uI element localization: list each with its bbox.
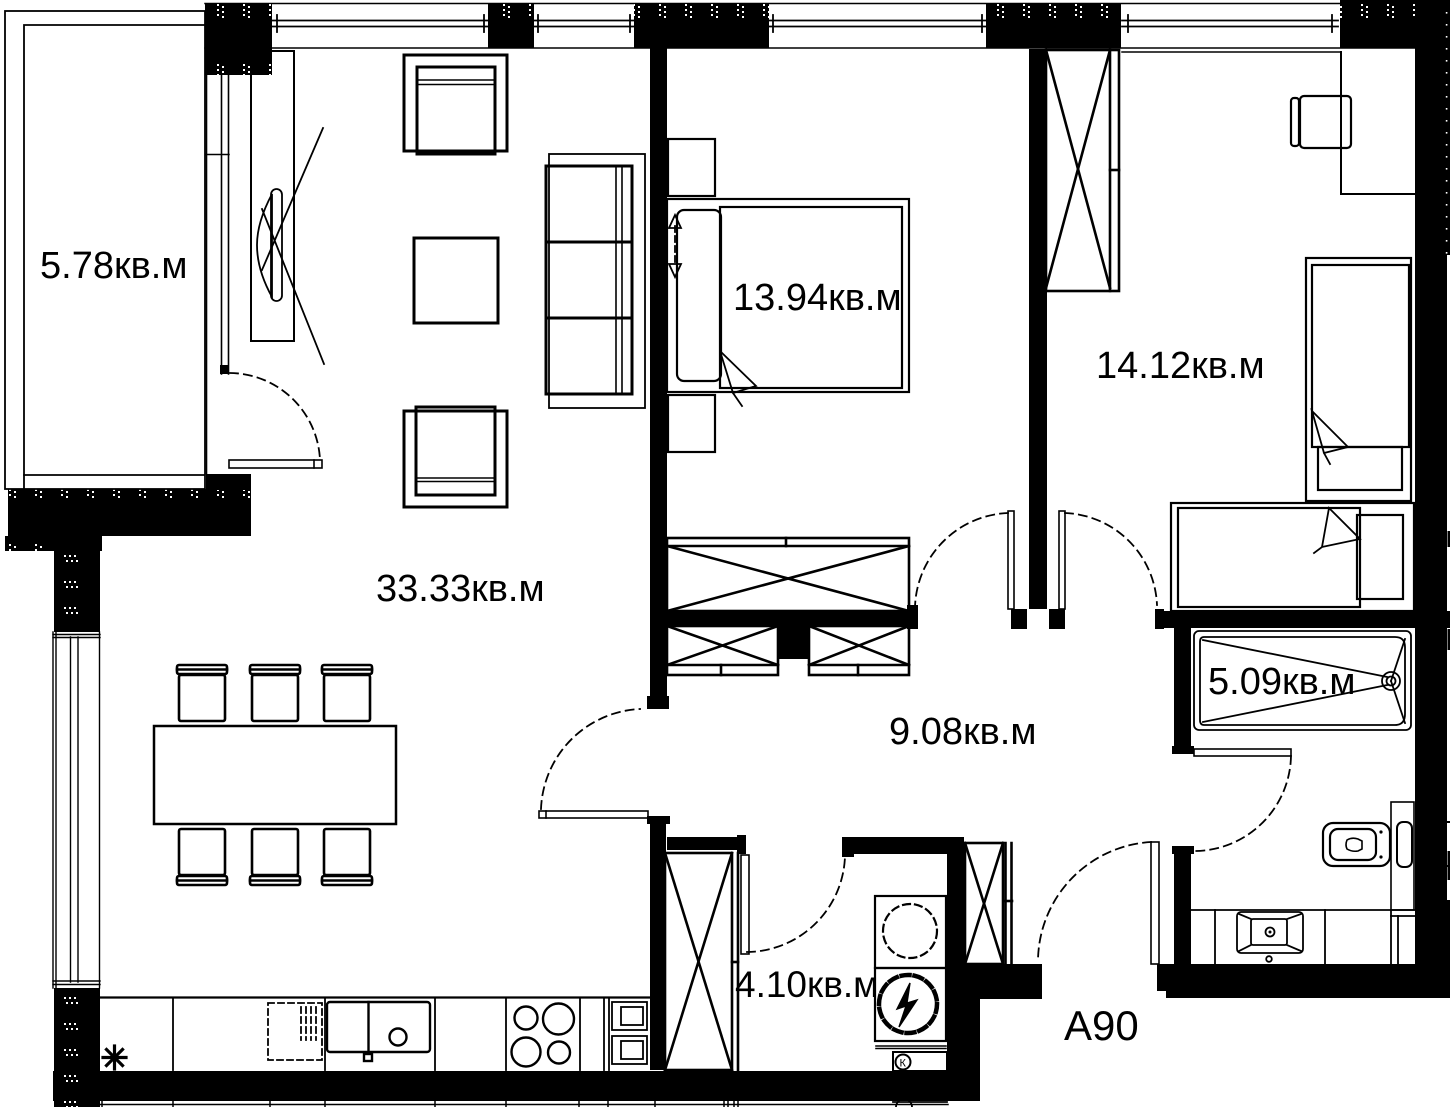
svg-text:14.12кв.м: 14.12кв.м [1096, 345, 1265, 387]
svg-text:4.10кв.м: 4.10кв.м [735, 964, 879, 1005]
svg-text:13.94кв.м: 13.94кв.м [733, 277, 902, 319]
svg-text:5.78кв.м: 5.78кв.м [40, 245, 187, 287]
svg-text:9.08кв.м: 9.08кв.м [889, 711, 1036, 753]
svg-text:A90: A90 [1064, 1002, 1139, 1049]
svg-text:К: К [900, 1058, 907, 1070]
svg-text:33.33кв.м: 33.33кв.м [376, 568, 545, 610]
